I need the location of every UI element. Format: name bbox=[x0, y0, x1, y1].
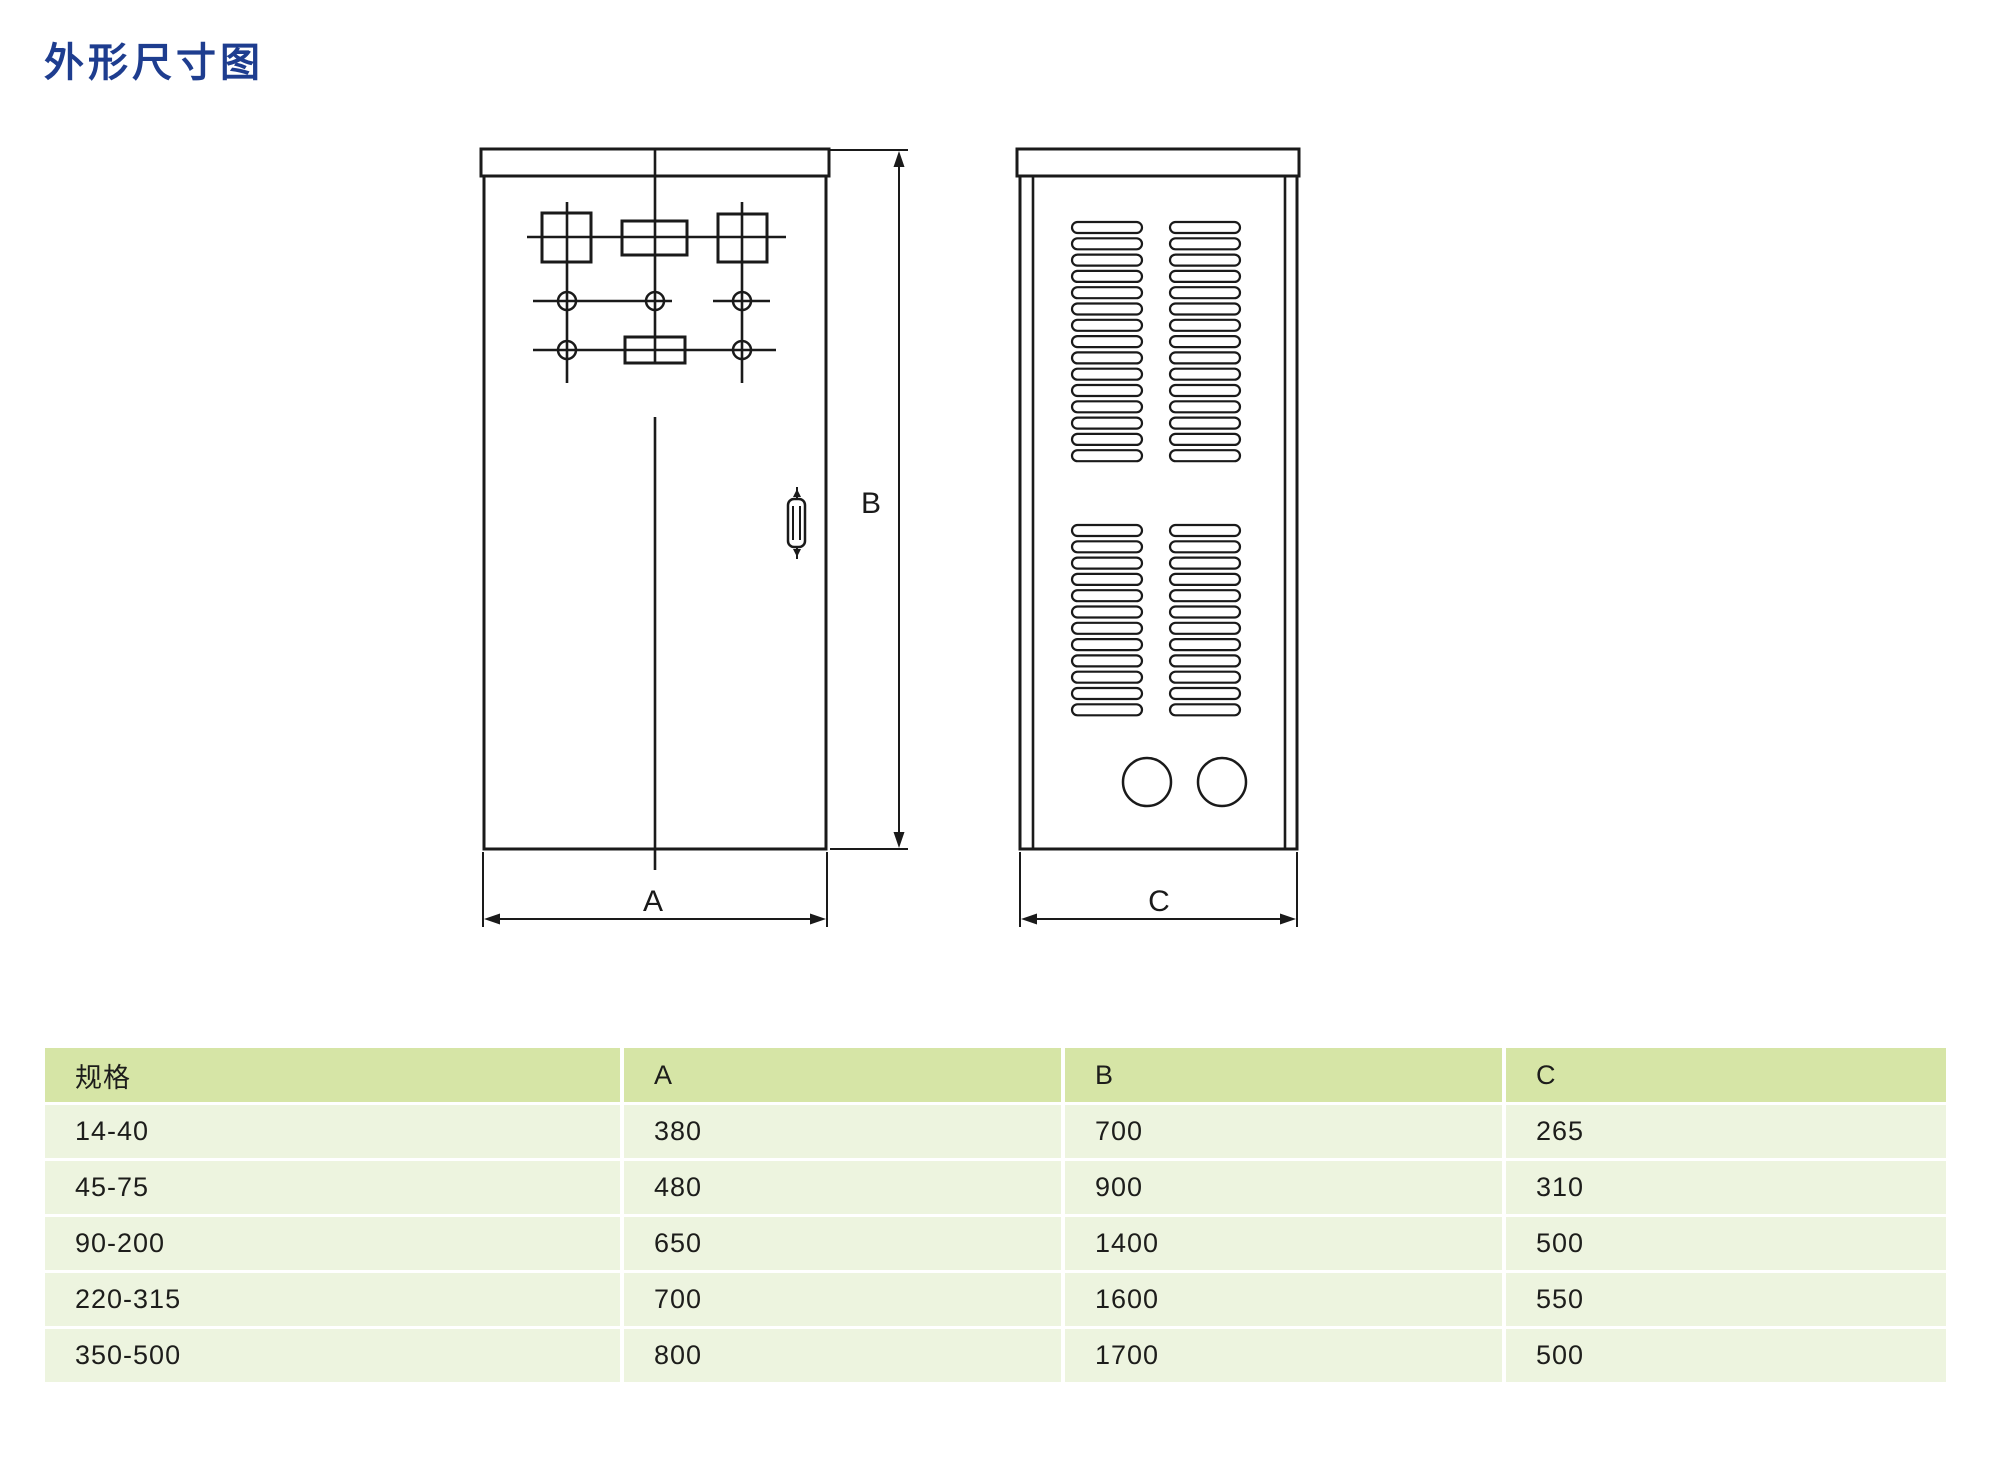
table-cell-b: 1700 bbox=[1065, 1329, 1502, 1382]
table-cell-spec: 14-40 bbox=[45, 1105, 620, 1158]
table-cell-b: 900 bbox=[1065, 1161, 1502, 1214]
table-cell-c: 265 bbox=[1506, 1105, 1946, 1158]
side-body-outline bbox=[1020, 176, 1297, 849]
catalog-page: 外形尺寸图 bbox=[0, 0, 2000, 1463]
dimension-c: C bbox=[1020, 852, 1297, 927]
table-cell-b: 700 bbox=[1065, 1105, 1502, 1158]
table-cell-spec: 45-75 bbox=[45, 1161, 620, 1214]
table-cell-c: 500 bbox=[1506, 1329, 1946, 1382]
table-cell-c: 310 bbox=[1506, 1161, 1946, 1214]
col-header-c: C bbox=[1506, 1048, 1946, 1102]
side-top-cap bbox=[1017, 149, 1299, 176]
col-header-spec: 规格 bbox=[45, 1048, 620, 1102]
table-cell-a: 480 bbox=[624, 1161, 1061, 1214]
side-view bbox=[1017, 149, 1299, 849]
dim-label-a: A bbox=[643, 885, 663, 918]
table-cell-a: 700 bbox=[624, 1273, 1061, 1326]
front-view bbox=[481, 149, 829, 870]
col-header-b: B bbox=[1065, 1048, 1502, 1102]
table-cell-a: 650 bbox=[624, 1217, 1061, 1270]
dimension-spec-table: 规格 A B C 14-40 380 700 265 45-75 480 900… bbox=[45, 1048, 1946, 1382]
table-cell-spec: 220-315 bbox=[45, 1273, 620, 1326]
table-cell-spec: 350-500 bbox=[45, 1329, 620, 1382]
table-cell-c: 550 bbox=[1506, 1273, 1946, 1326]
dim-label-c: C bbox=[1148, 885, 1170, 918]
outline-dimension-diagram: B A C bbox=[0, 0, 2000, 960]
table-cell-b: 1600 bbox=[1065, 1273, 1502, 1326]
table-cell-a: 800 bbox=[624, 1329, 1061, 1382]
table-cell-a: 380 bbox=[624, 1105, 1061, 1158]
col-header-a: A bbox=[624, 1048, 1061, 1102]
dim-label-b: B bbox=[861, 487, 881, 520]
dimension-b: B bbox=[830, 150, 908, 849]
table-cell-spec: 90-200 bbox=[45, 1217, 620, 1270]
table-cell-c: 500 bbox=[1506, 1217, 1946, 1270]
table-cell-b: 1400 bbox=[1065, 1217, 1502, 1270]
